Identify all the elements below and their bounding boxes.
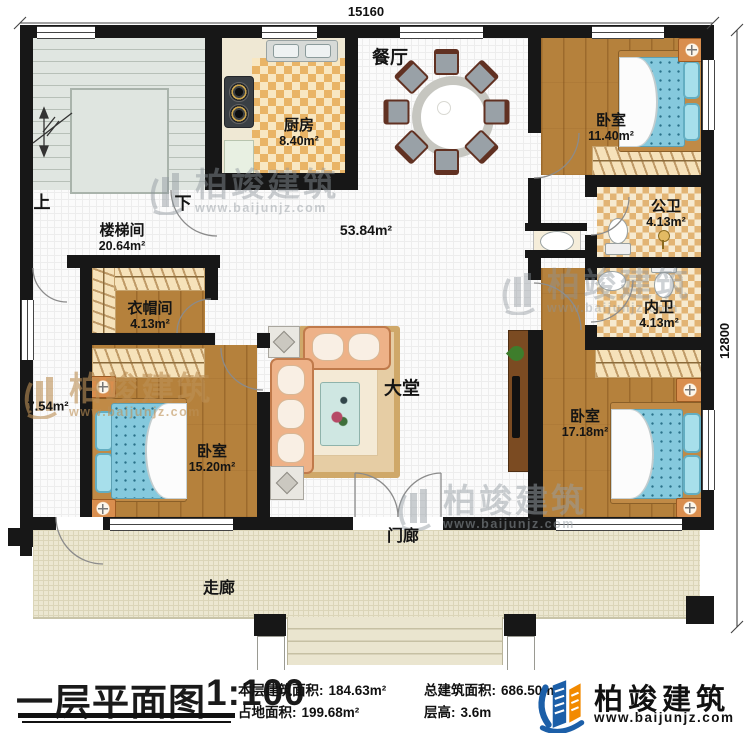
room-area: 8.40m² xyxy=(279,134,319,148)
door-arc xyxy=(398,473,441,517)
corridor-area-label: 7.54m² xyxy=(27,400,68,415)
room-name: 公卫 xyxy=(646,198,686,215)
room-name: 餐厅 xyxy=(372,48,408,69)
room-name: 卧室 xyxy=(588,112,634,129)
stats-column-1: 本层建筑面积: 184.63m² 占地面积: 199.68m² xyxy=(238,680,386,724)
room-name: 楼梯间 xyxy=(99,222,146,239)
room-label-dining: 餐厅 xyxy=(372,48,408,69)
room-label-lobby: 大堂 xyxy=(384,379,420,400)
room-area: 4.13m² xyxy=(639,316,679,330)
stat-footprint-area: 占地面积: 199.68m² xyxy=(238,702,386,724)
door-arc xyxy=(177,299,211,333)
room-name: 门廊 xyxy=(387,528,419,546)
stair-arrow-head xyxy=(40,146,48,156)
room-label-bedroom-right: 卧室 17.18m² xyxy=(562,408,609,440)
room-label-veranda: 走廊 xyxy=(203,580,235,598)
room-label-bedroom-tr: 卧室 11.40m² xyxy=(588,112,634,144)
room-area: 4.13m² xyxy=(127,317,172,331)
door-arc xyxy=(534,133,579,178)
door-arc xyxy=(355,473,398,517)
door-arc xyxy=(591,197,629,235)
floor-plan-sheet: 柏竣建筑 www.baijunjz.com 柏竣建筑 www.baijunjz.… xyxy=(0,0,750,739)
dimension-right-label: 12800 xyxy=(717,297,732,359)
stat-value: 184.63m² xyxy=(329,680,387,702)
stat-label: 层高: xyxy=(424,702,456,724)
room-name: 衣帽间 xyxy=(127,300,172,317)
room-area: 11.40m² xyxy=(588,129,634,143)
room-name: 走廊 xyxy=(203,580,235,598)
door-arc xyxy=(33,268,67,302)
room-area: 17.18m² xyxy=(562,425,609,439)
stair-up-label: 上 xyxy=(34,193,51,213)
room-area: 15.20m² xyxy=(189,460,236,474)
stat-value: 3.6m xyxy=(461,702,492,724)
dimension-top-label: 15160 xyxy=(340,4,392,19)
room-name: 大堂 xyxy=(384,379,420,400)
room-label-private-bath: 内卫 4.13m² xyxy=(639,299,679,331)
title-underline xyxy=(18,713,235,718)
stat-label: 占地面积: xyxy=(238,702,297,724)
room-name: 厨房 xyxy=(279,117,319,134)
stair-direction-line xyxy=(33,113,72,143)
brand-url: www.baijunjz.com xyxy=(594,710,735,725)
door-arc xyxy=(591,280,633,322)
door-arc xyxy=(534,283,581,330)
room-label-bedroom-bl: 卧室 15.20m² xyxy=(189,443,236,475)
room-label-stairwell: 楼梯间 20.64m² xyxy=(99,222,146,254)
room-name: 内卫 xyxy=(639,299,679,316)
door-arc xyxy=(56,517,103,564)
hall-area-label: 53.84m² xyxy=(340,222,392,238)
brand-logo-icon xyxy=(532,671,590,733)
room-label-porch: 门廊 xyxy=(387,528,419,546)
room-area: 20.64m² xyxy=(99,239,146,253)
stat-floor-area: 本层建筑面积: 184.63m² xyxy=(238,680,386,702)
room-label-public-bath: 公卫 4.13m² xyxy=(646,198,686,230)
stair-arrow-head xyxy=(40,108,48,118)
room-label-cloakroom: 衣帽间 4.13m² xyxy=(127,300,172,332)
stair-down-label: 下 xyxy=(175,194,192,214)
stat-label: 本层建筑面积: xyxy=(238,680,324,702)
plan-annotations xyxy=(0,0,750,739)
room-label-kitchen: 厨房 8.40m² xyxy=(279,117,319,149)
room-area: 4.13m² xyxy=(646,215,686,229)
stat-value: 199.68m² xyxy=(302,702,360,724)
room-name: 卧室 xyxy=(189,443,236,460)
title-underline-thin xyxy=(22,721,231,723)
title-block: 一层平面图1:100 本层建筑面积: 184.63m² 占地面积: 199.68… xyxy=(0,670,750,739)
door-arc xyxy=(221,348,263,390)
stat-label: 总建筑面积: xyxy=(424,680,496,702)
room-name: 卧室 xyxy=(562,408,609,425)
